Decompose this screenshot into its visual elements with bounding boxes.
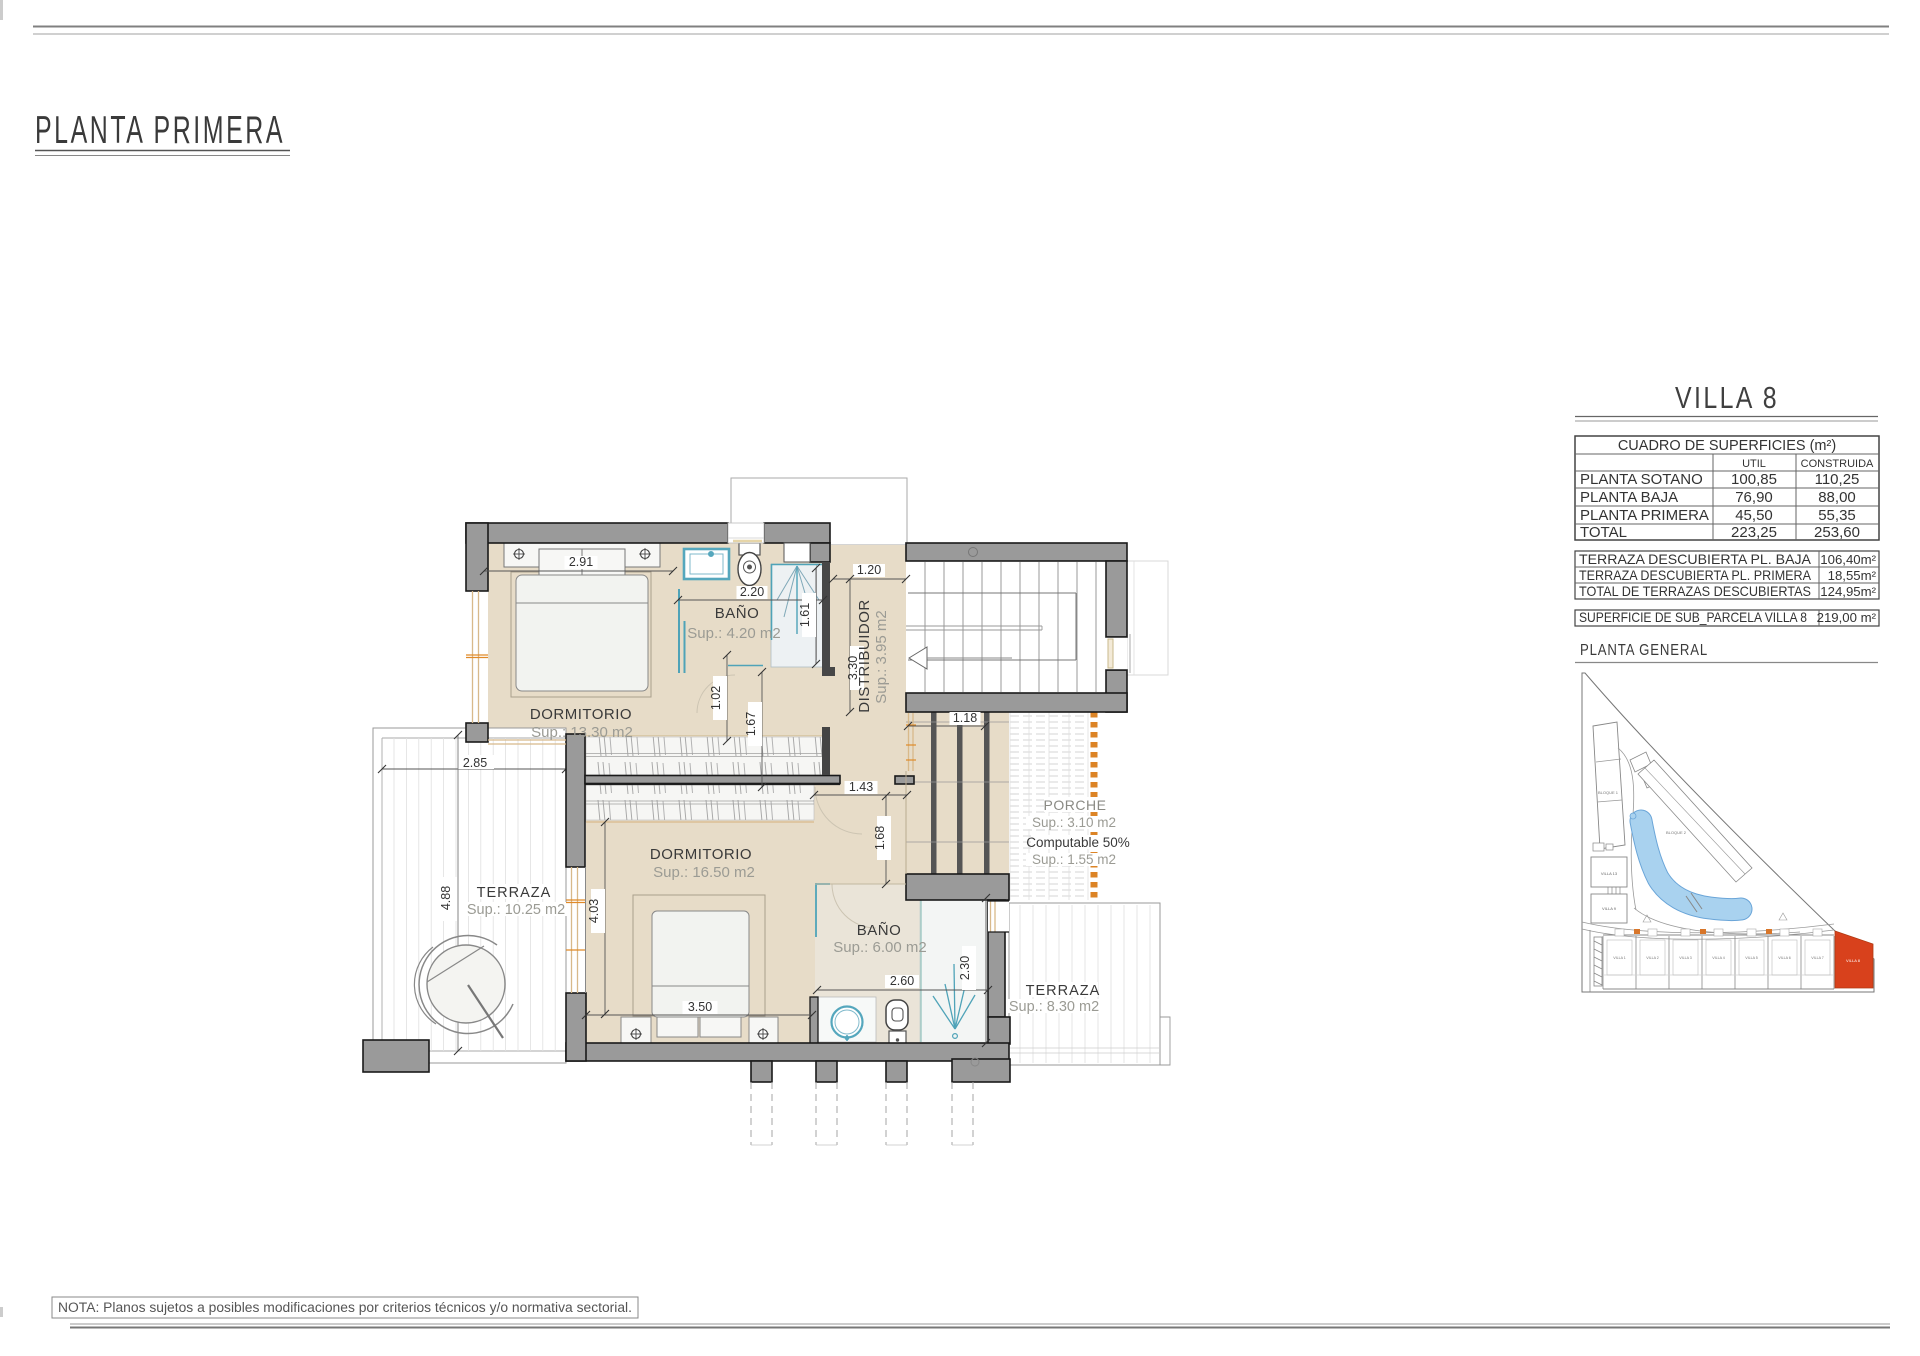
svg-text:4.88: 4.88: [439, 886, 453, 910]
svg-text:CONSTRUIDA: CONSTRUIDA: [1801, 458, 1874, 470]
svg-text:124,95m²: 124,95m²: [1820, 584, 1876, 599]
svg-text:DORMITORIO: DORMITORIO: [650, 846, 752, 863]
svg-text:VILLA 5: VILLA 5: [1745, 956, 1758, 960]
svg-text:Sup.: 3.95 m2: Sup.: 3.95 m2: [873, 610, 890, 703]
svg-text:100,85: 100,85: [1731, 471, 1777, 488]
svg-text:Sup.: 6.00 m2: Sup.: 6.00 m2: [833, 939, 926, 956]
svg-text:45,50: 45,50: [1735, 507, 1773, 524]
svg-text:2.60: 2.60: [890, 974, 914, 988]
svg-text:2.85: 2.85: [463, 756, 487, 770]
svg-text:UTIL: UTIL: [1742, 458, 1766, 470]
svg-text:DISTRIBUIDOR: DISTRIBUIDOR: [856, 599, 873, 713]
svg-text:1.43: 1.43: [849, 780, 873, 794]
svg-text:1.68: 1.68: [873, 826, 887, 850]
svg-text:VILLA 1: VILLA 1: [1613, 956, 1626, 960]
svg-text:PLANTA PRIMERA: PLANTA PRIMERA: [1580, 507, 1709, 524]
svg-text:106,40m²: 106,40m²: [1820, 552, 1876, 567]
svg-text:BLOQUE 1: BLOQUE 1: [1598, 790, 1619, 795]
svg-text:223,25: 223,25: [1731, 524, 1777, 541]
svg-text:88,00: 88,00: [1818, 489, 1856, 506]
svg-text:BLOQUE 2: BLOQUE 2: [1666, 830, 1687, 835]
svg-text:2.20: 2.20: [740, 585, 764, 599]
svg-text:TERRAZA DESCUBIERTA PL. PRIMER: TERRAZA DESCUBIERTA PL. PRIMERA: [1579, 567, 1812, 583]
svg-text:Sup.: 4.20 m2: Sup.: 4.20 m2: [687, 625, 780, 642]
svg-text:PLANTA PRIMERA: PLANTA PRIMERA: [35, 109, 285, 152]
svg-text:VILLA 7: VILLA 7: [1811, 956, 1824, 960]
svg-text:Sup.: 1.55 m2: Sup.: 1.55 m2: [1032, 852, 1116, 867]
svg-text:Sup.: 8.30 m2: Sup.: 8.30 m2: [1009, 999, 1099, 1015]
svg-text:1.20: 1.20: [857, 563, 881, 577]
svg-text:VILLA 6: VILLA 6: [1778, 956, 1791, 960]
svg-text:NOTA: Planos sujetos a posible: NOTA: Planos sujetos a posibles modifica…: [58, 1300, 632, 1315]
svg-text:3.50: 3.50: [688, 1000, 712, 1014]
svg-text:1.18: 1.18: [953, 711, 977, 725]
svg-text:PORCHE: PORCHE: [1044, 797, 1107, 813]
svg-text:1.02: 1.02: [709, 686, 723, 710]
svg-text:Sup.: 10.25 m2: Sup.: 10.25 m2: [467, 902, 565, 918]
svg-text:TOTAL: TOTAL: [1580, 524, 1627, 541]
svg-text:Sup.: 13.30 m2: Sup.: 13.30 m2: [531, 724, 633, 741]
svg-text:VILLA 8: VILLA 8: [1846, 958, 1861, 963]
svg-text:2.91: 2.91: [569, 555, 593, 569]
svg-text:110,25: 110,25: [1815, 471, 1860, 488]
svg-text:VILLA 2: VILLA 2: [1646, 956, 1659, 960]
svg-text:DORMITORIO: DORMITORIO: [530, 706, 632, 723]
svg-text:VILLA 8: VILLA 8: [1675, 380, 1779, 415]
svg-text:PLANTA SOTANO: PLANTA SOTANO: [1580, 471, 1703, 488]
svg-text:219,00 m²: 219,00 m²: [1817, 610, 1877, 625]
svg-text:18,55m²: 18,55m²: [1828, 568, 1877, 583]
svg-text:55,35: 55,35: [1818, 507, 1856, 524]
svg-text:76,90: 76,90: [1735, 489, 1773, 506]
svg-text:VILLA 3: VILLA 3: [1679, 956, 1692, 960]
svg-text:SUPERFICIE DE SUB_PARCELA VILL: SUPERFICIE DE SUB_PARCELA VILLA 8: [1579, 609, 1807, 625]
svg-text:TERRAZA: TERRAZA: [1026, 983, 1101, 999]
svg-text:2.30: 2.30: [958, 956, 972, 980]
svg-text:Sup.: 16.50 m2: Sup.: 16.50 m2: [653, 864, 755, 881]
svg-text:TERRAZA: TERRAZA: [477, 885, 552, 901]
svg-text:Computable 50%: Computable 50%: [1026, 835, 1130, 850]
svg-text:PLANTA BAJA: PLANTA BAJA: [1580, 489, 1678, 506]
svg-text:VILLA 9: VILLA 9: [1602, 906, 1617, 911]
svg-text:PLANTA GENERAL: PLANTA GENERAL: [1580, 642, 1708, 659]
svg-text:1.61: 1.61: [798, 603, 812, 627]
svg-text:CUADRO DE SUPERFICIES (m²): CUADRO DE SUPERFICIES (m²): [1618, 438, 1836, 454]
svg-text:253,60: 253,60: [1814, 524, 1860, 541]
svg-text:VILLA 4: VILLA 4: [1712, 956, 1725, 960]
svg-text:1.67: 1.67: [744, 712, 758, 736]
svg-text:TOTAL DE TERRAZAS DESCUBIERTAS: TOTAL DE TERRAZAS DESCUBIERTAS: [1579, 583, 1811, 599]
svg-text:4.03: 4.03: [587, 899, 601, 923]
svg-text:VILLA 13: VILLA 13: [1601, 871, 1618, 876]
svg-text:TERRAZA DESCUBIERTA PL. BAJA: TERRAZA DESCUBIERTA PL. BAJA: [1579, 551, 1812, 567]
svg-text:BAÑO: BAÑO: [715, 605, 760, 622]
svg-text:Sup.: 3.10 m2: Sup.: 3.10 m2: [1032, 815, 1116, 830]
svg-text:BAÑO: BAÑO: [857, 922, 902, 939]
